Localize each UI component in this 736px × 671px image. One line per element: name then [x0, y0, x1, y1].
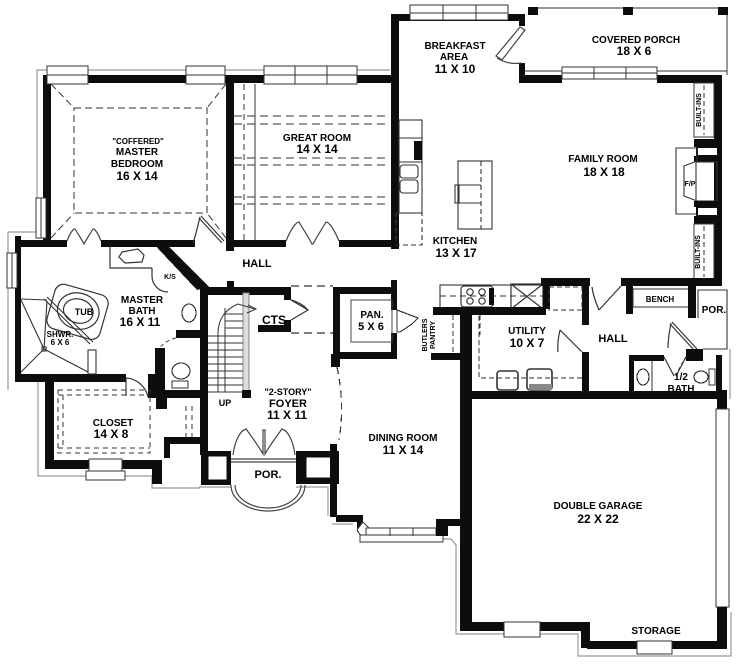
- svg-text:11 X 11: 11 X 11: [267, 408, 307, 422]
- svg-text:POR.: POR.: [702, 305, 727, 316]
- svg-text:10 X 7: 10 X 7: [510, 336, 545, 350]
- svg-text:13 X 17: 13 X 17: [435, 246, 477, 260]
- svg-text:22 X 22: 22 X 22: [577, 512, 619, 526]
- svg-text:14 X 14: 14 X 14: [296, 142, 338, 156]
- svg-text:FAMILY ROOM: FAMILY ROOM: [568, 154, 637, 165]
- svg-text:11 X 10: 11 X 10: [435, 62, 476, 76]
- svg-text:POR.: POR.: [255, 469, 282, 481]
- svg-text:5 X 6: 5 X 6: [358, 321, 384, 333]
- svg-text:K/S: K/S: [164, 274, 176, 281]
- svg-text:BUTLERS: BUTLERS: [422, 318, 429, 351]
- svg-text:18 X 6: 18 X 6: [617, 44, 652, 58]
- svg-text:18 X 18: 18 X 18: [583, 165, 625, 179]
- svg-text:16 X 11: 16 X 11: [120, 315, 161, 329]
- svg-text:6 X 6: 6 X 6: [51, 338, 70, 347]
- svg-text:"COFFERED": "COFFERED": [112, 137, 164, 146]
- svg-text:F/P: F/P: [685, 181, 696, 188]
- svg-text:MASTER: MASTER: [116, 147, 159, 158]
- svg-text:PANTRY: PANTRY: [430, 321, 437, 349]
- svg-text:CTS: CTS: [262, 313, 286, 327]
- svg-text:PAN.: PAN.: [360, 310, 383, 321]
- svg-text:BUILT-INS: BUILT-INS: [695, 235, 702, 269]
- svg-text:11 X 14: 11 X 14: [383, 443, 424, 457]
- svg-text:DOUBLE GARAGE: DOUBLE GARAGE: [554, 501, 643, 512]
- svg-text:"2-STORY": "2-STORY": [264, 387, 311, 397]
- svg-text:HALL: HALL: [598, 333, 628, 345]
- svg-text:TUB: TUB: [75, 307, 94, 317]
- svg-text:16 X 14: 16 X 14: [116, 169, 158, 183]
- svg-text:14 X 8: 14 X 8: [94, 427, 129, 441]
- svg-text:BUILT-INS: BUILT-INS: [696, 93, 703, 127]
- svg-text:STORAGE: STORAGE: [631, 626, 681, 637]
- svg-text:HALL: HALL: [242, 258, 272, 270]
- svg-text:BREAKFAST: BREAKFAST: [424, 41, 485, 52]
- svg-text:1/2: 1/2: [674, 372, 688, 383]
- svg-text:BENCH: BENCH: [646, 295, 675, 304]
- svg-text:UP: UP: [219, 398, 232, 408]
- svg-text:MASTER: MASTER: [121, 295, 164, 306]
